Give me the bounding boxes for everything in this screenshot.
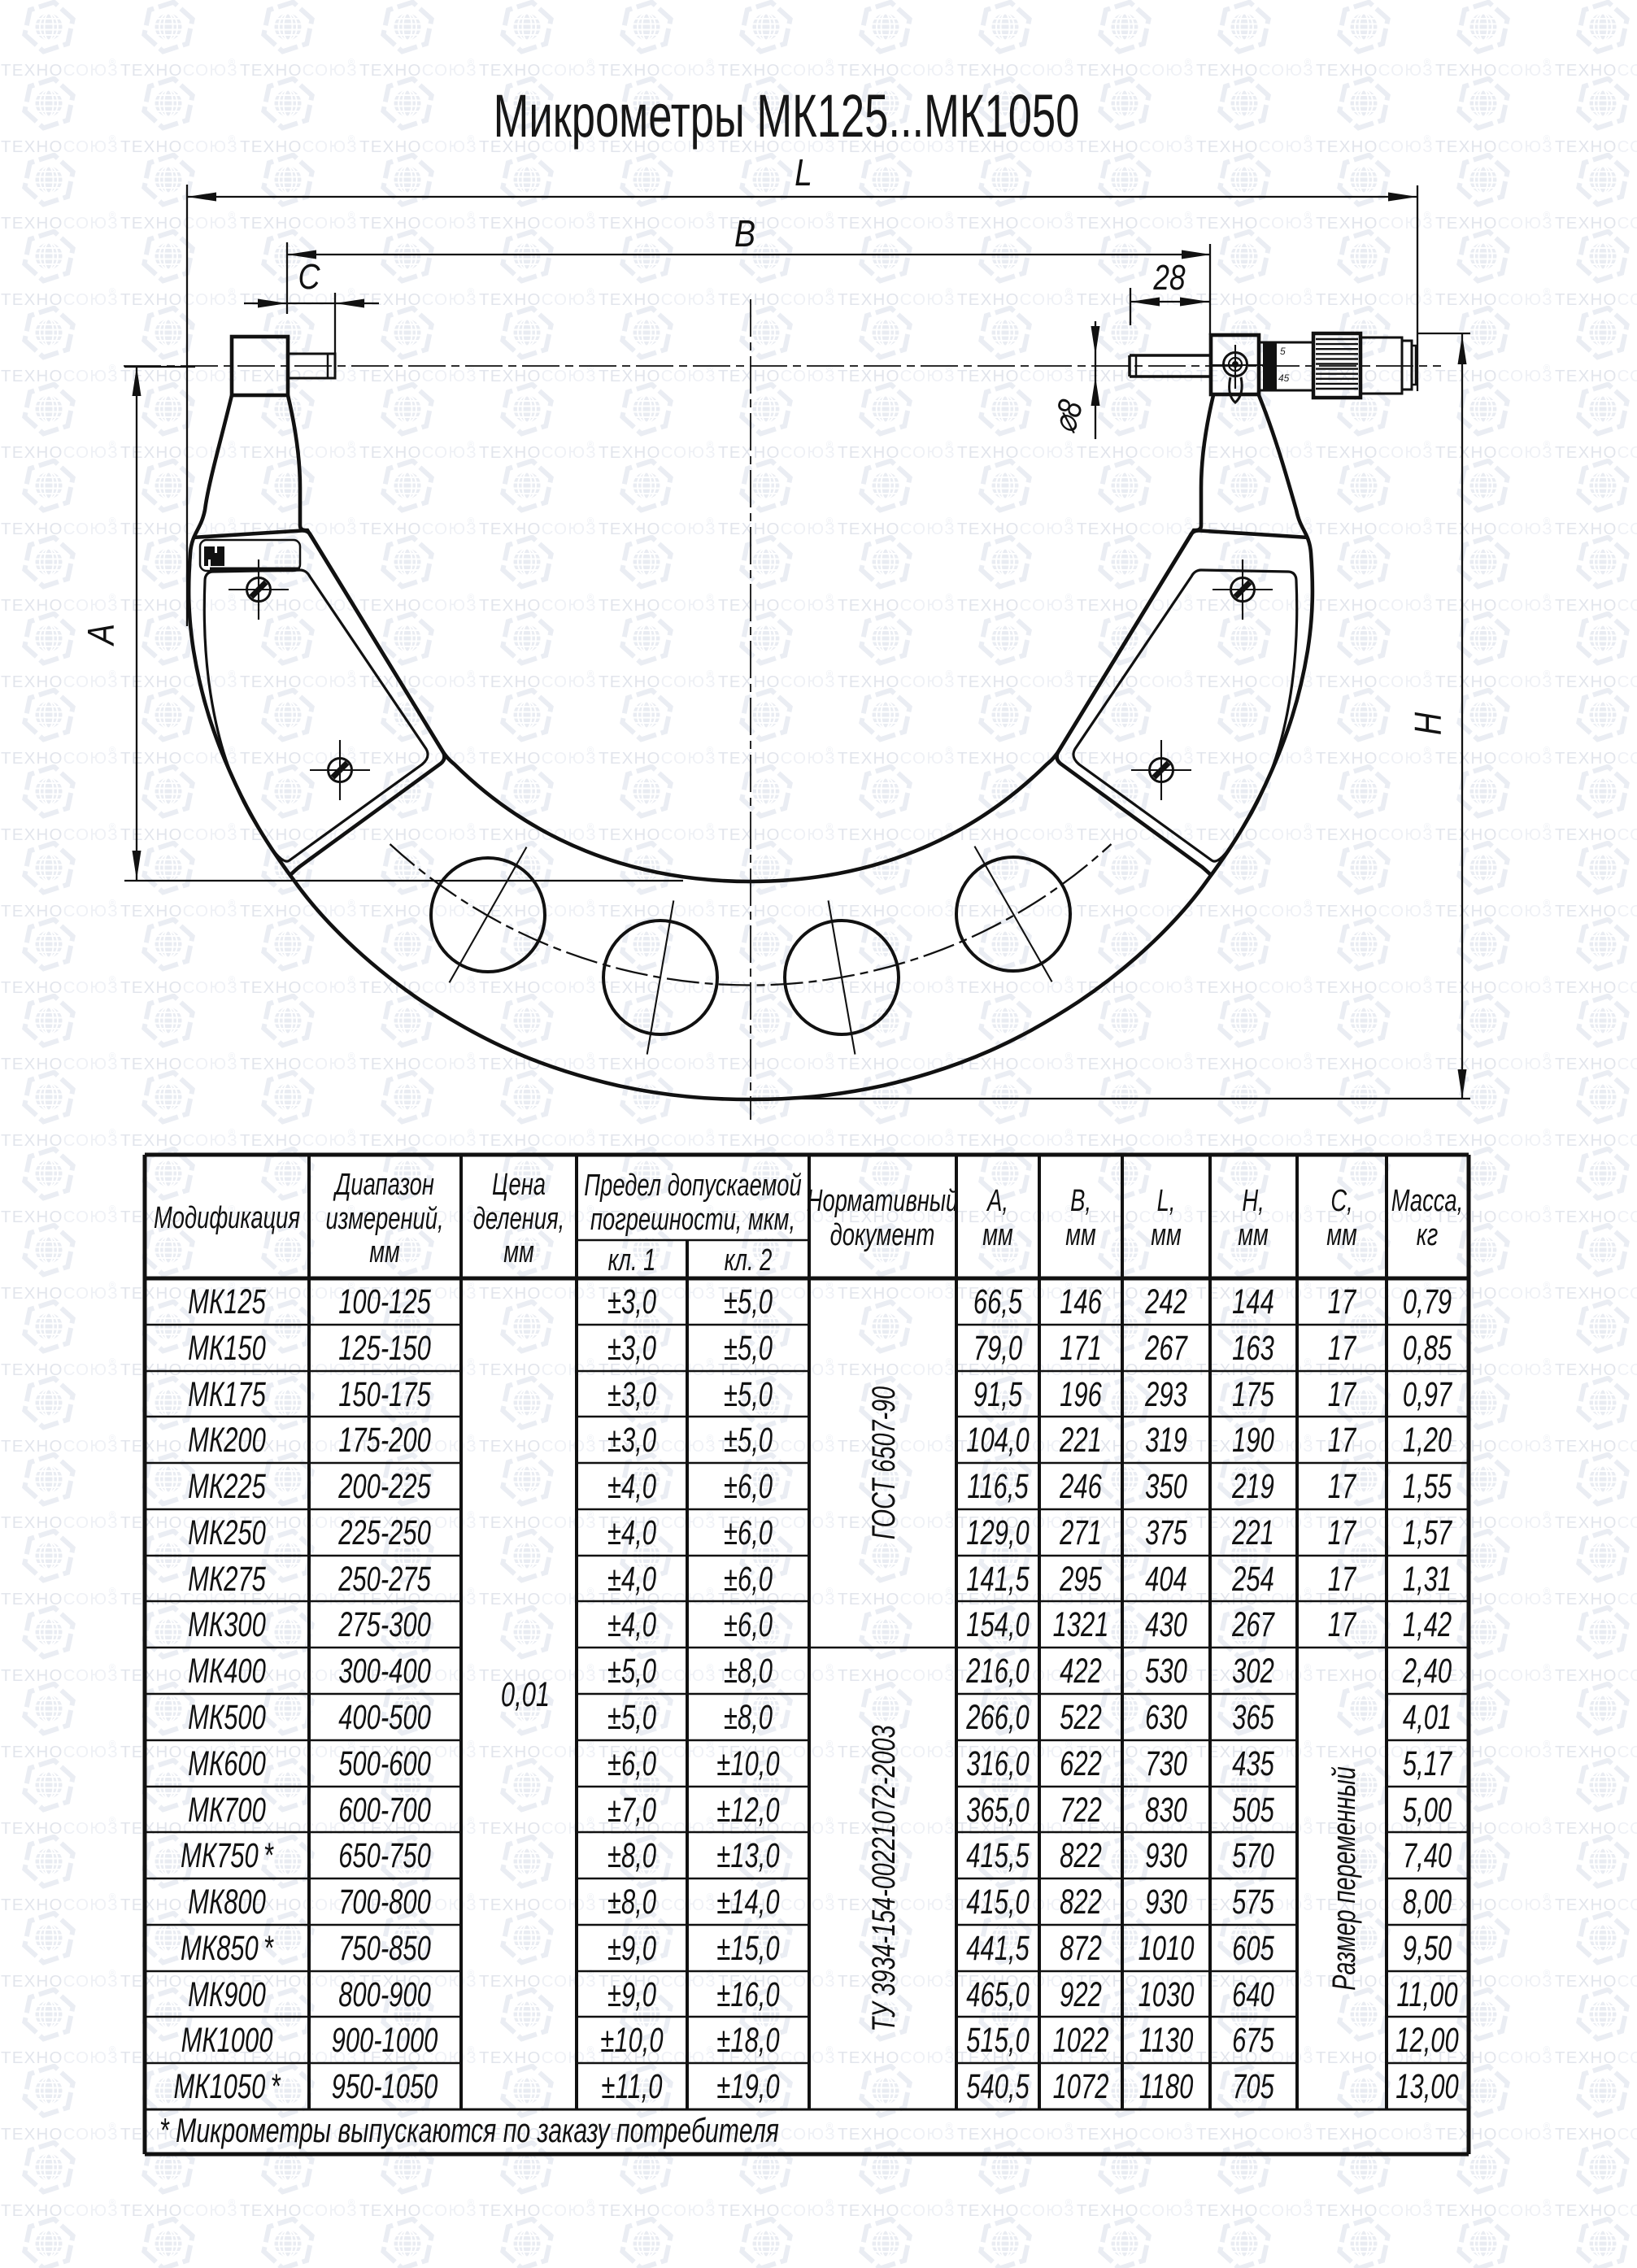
svg-text:МК1000: МК1000 xyxy=(181,2020,273,2059)
svg-text:±6,0: ±6,0 xyxy=(724,1604,773,1643)
svg-text:17: 17 xyxy=(1328,1466,1356,1505)
svg-text:319: 319 xyxy=(1145,1420,1187,1459)
svg-text:С: С xyxy=(298,256,320,297)
svg-text:кл. 2: кл. 2 xyxy=(725,1243,773,1278)
svg-text:Нормативный: Нормативный xyxy=(807,1184,959,1218)
svg-text:Размер переменный: Размер переменный xyxy=(1326,1766,1362,1991)
svg-text:365,0: 365,0 xyxy=(966,1790,1030,1829)
svg-text:12,00: 12,00 xyxy=(1395,2020,1459,2059)
svg-text:1022: 1022 xyxy=(1053,2020,1109,2059)
svg-text:640: 640 xyxy=(1232,1974,1274,2013)
svg-text:600-700: 600-700 xyxy=(338,1790,431,1829)
svg-text:242: 242 xyxy=(1144,1282,1187,1321)
svg-text:5: 5 xyxy=(1280,346,1286,357)
svg-text:430: 430 xyxy=(1145,1604,1187,1643)
svg-text:±3,0: ±3,0 xyxy=(607,1374,656,1413)
svg-text:254: 254 xyxy=(1231,1559,1273,1598)
svg-text:302: 302 xyxy=(1232,1651,1274,1690)
svg-text:91,5: 91,5 xyxy=(973,1374,1022,1413)
svg-text:540,5: 540,5 xyxy=(966,2066,1030,2105)
svg-text:705: 705 xyxy=(1232,2066,1274,2105)
svg-text:С,: С, xyxy=(1330,1184,1352,1218)
svg-text:мм: мм xyxy=(1151,1218,1182,1252)
svg-text:11,00: 11,00 xyxy=(1396,1974,1457,2013)
svg-text:В,: В, xyxy=(1070,1184,1091,1218)
svg-text:±7,0: ±7,0 xyxy=(607,1790,656,1829)
svg-text:271: 271 xyxy=(1059,1513,1101,1552)
svg-text:216,0: 216,0 xyxy=(965,1651,1029,1690)
svg-text:мм: мм xyxy=(1065,1218,1096,1252)
svg-text:221: 221 xyxy=(1231,1513,1273,1552)
svg-text:±3,0: ±3,0 xyxy=(607,1420,656,1459)
svg-text:1130: 1130 xyxy=(1139,2020,1194,2059)
svg-text:1321: 1321 xyxy=(1053,1604,1109,1643)
svg-text:В: В xyxy=(734,213,755,255)
svg-text:Диапазон: Диапазон xyxy=(333,1168,434,1202)
svg-text:±3,0: ±3,0 xyxy=(607,1328,656,1367)
svg-text:730: 730 xyxy=(1145,1743,1187,1783)
svg-text:1010: 1010 xyxy=(1138,1928,1195,1967)
svg-text:±5,0: ±5,0 xyxy=(724,1328,773,1367)
svg-text:0,01: 0,01 xyxy=(501,1674,550,1713)
svg-text:±5,0: ±5,0 xyxy=(724,1420,773,1459)
svg-text:515,0: 515,0 xyxy=(966,2020,1030,2059)
svg-text:822: 822 xyxy=(1060,1835,1102,1874)
svg-text:МК600: МК600 xyxy=(188,1743,266,1783)
svg-text:125-150: 125-150 xyxy=(338,1328,431,1367)
svg-text:МК850 *: МК850 * xyxy=(181,1928,274,1967)
svg-text:17: 17 xyxy=(1328,1282,1356,1321)
svg-text:163: 163 xyxy=(1232,1328,1274,1367)
svg-text:МК225: МК225 xyxy=(188,1466,266,1505)
svg-text:МК125: МК125 xyxy=(188,1282,266,1321)
svg-text:171: 171 xyxy=(1060,1328,1102,1367)
svg-text:Модификация: Модификация xyxy=(154,1201,300,1235)
svg-text:МК200: МК200 xyxy=(188,1420,266,1459)
svg-text:МК175: МК175 xyxy=(188,1374,266,1413)
svg-text:293: 293 xyxy=(1144,1374,1187,1413)
svg-text:мм: мм xyxy=(1326,1218,1357,1252)
svg-text:575: 575 xyxy=(1232,1882,1274,1921)
svg-text:104,0: 104,0 xyxy=(966,1420,1030,1459)
svg-text:1030: 1030 xyxy=(1138,1974,1195,2013)
svg-text:±8,0: ±8,0 xyxy=(724,1697,773,1736)
svg-text:0,97: 0,97 xyxy=(1403,1374,1452,1413)
svg-text:МК750 *: МК750 * xyxy=(181,1835,274,1874)
svg-text:кл. 1: кл. 1 xyxy=(608,1243,656,1278)
svg-text:А,: А, xyxy=(986,1184,1008,1218)
svg-text:±3,0: ±3,0 xyxy=(607,1282,656,1321)
svg-text:950-1050: 950-1050 xyxy=(332,2066,438,2105)
svg-text:1,31: 1,31 xyxy=(1403,1559,1452,1598)
svg-text:316,0: 316,0 xyxy=(966,1743,1030,1783)
svg-text:±9,0: ±9,0 xyxy=(607,1974,656,2013)
svg-text:17: 17 xyxy=(1328,1374,1356,1413)
svg-text:219: 219 xyxy=(1231,1466,1274,1505)
svg-text:документ: документ xyxy=(830,1218,935,1252)
svg-text:МК250: МК250 xyxy=(188,1513,266,1552)
svg-text:404: 404 xyxy=(1145,1559,1187,1598)
svg-text:погрешности, мкм,: погрешности, мкм, xyxy=(590,1203,795,1237)
svg-text:±4,0: ±4,0 xyxy=(607,1513,656,1552)
svg-text:441,5: 441,5 xyxy=(966,1928,1030,1967)
svg-text:деления,: деления, xyxy=(473,1202,565,1236)
svg-text:1072: 1072 xyxy=(1053,2066,1109,2105)
svg-text:±5,0: ±5,0 xyxy=(724,1282,773,1321)
svg-text:2,40: 2,40 xyxy=(1402,1651,1452,1690)
svg-text:Микрометры МК125...МК1050: Микрометры МК125...МК1050 xyxy=(494,82,1080,150)
svg-text:28: 28 xyxy=(1153,258,1186,298)
svg-text:L,: L, xyxy=(1157,1184,1176,1218)
svg-text:930: 930 xyxy=(1145,1882,1187,1921)
svg-text:5,17: 5,17 xyxy=(1403,1743,1452,1783)
svg-text:±6,0: ±6,0 xyxy=(724,1513,773,1552)
svg-text:МК500: МК500 xyxy=(188,1697,266,1736)
svg-text:17: 17 xyxy=(1328,1559,1356,1598)
svg-text:±5,0: ±5,0 xyxy=(607,1651,656,1690)
svg-text:45: 45 xyxy=(1278,372,1290,384)
svg-text:415,5: 415,5 xyxy=(966,1835,1030,1874)
svg-text:17: 17 xyxy=(1328,1604,1356,1643)
svg-text:196: 196 xyxy=(1060,1374,1102,1413)
svg-text:±5,0: ±5,0 xyxy=(607,1697,656,1736)
svg-text:266,0: 266,0 xyxy=(965,1697,1029,1736)
svg-text:±15,0: ±15,0 xyxy=(716,1928,779,1967)
svg-text:900-1000: 900-1000 xyxy=(332,2020,438,2059)
svg-text:129,0: 129,0 xyxy=(966,1513,1030,1552)
svg-text:±8,0: ±8,0 xyxy=(724,1651,773,1690)
svg-text:±10,0: ±10,0 xyxy=(600,2020,663,2059)
svg-text:мм: мм xyxy=(1238,1218,1269,1252)
svg-text:±13,0: ±13,0 xyxy=(716,1835,779,1874)
svg-text:±4,0: ±4,0 xyxy=(607,1604,656,1643)
svg-text:±16,0: ±16,0 xyxy=(716,1974,779,2013)
svg-text:700-800: 700-800 xyxy=(338,1882,431,1921)
svg-text:4,01: 4,01 xyxy=(1403,1697,1452,1736)
svg-text:116,5: 116,5 xyxy=(967,1466,1028,1505)
svg-text:422: 422 xyxy=(1060,1651,1102,1690)
svg-text:0,79: 0,79 xyxy=(1403,1282,1452,1321)
svg-text:Н,: Н, xyxy=(1242,1184,1264,1218)
svg-text:МК900: МК900 xyxy=(188,1974,266,2013)
svg-text:±14,0: ±14,0 xyxy=(716,1882,779,1921)
svg-text:±18,0: ±18,0 xyxy=(716,2020,779,2059)
svg-text:±6,0: ±6,0 xyxy=(724,1559,773,1598)
svg-text:221: 221 xyxy=(1059,1420,1101,1459)
svg-text:±6,0: ±6,0 xyxy=(607,1743,656,1783)
svg-text:630: 630 xyxy=(1145,1697,1187,1736)
svg-text:МК800: МК800 xyxy=(188,1882,266,1921)
svg-text:530: 530 xyxy=(1145,1651,1187,1690)
svg-text:±4,0: ±4,0 xyxy=(607,1466,656,1505)
svg-text:79,0: 79,0 xyxy=(973,1328,1022,1367)
svg-text:66,5: 66,5 xyxy=(973,1282,1022,1321)
svg-text:МК400: МК400 xyxy=(188,1651,266,1690)
svg-text:722: 722 xyxy=(1060,1790,1102,1829)
svg-text:295: 295 xyxy=(1059,1559,1102,1598)
svg-text:А: А xyxy=(81,624,123,647)
svg-text:1,55: 1,55 xyxy=(1403,1466,1452,1505)
svg-text:1,57: 1,57 xyxy=(1403,1513,1452,1552)
svg-text:±10,0: ±10,0 xyxy=(716,1743,779,1783)
svg-text:930: 930 xyxy=(1145,1835,1187,1874)
svg-text:225-250: 225-250 xyxy=(337,1513,431,1552)
svg-text:17: 17 xyxy=(1328,1513,1356,1552)
svg-text:±11,0: ±11,0 xyxy=(602,2066,663,2105)
svg-text:МК300: МК300 xyxy=(188,1604,266,1643)
svg-text:500-600: 500-600 xyxy=(338,1743,431,1783)
svg-text:кг: кг xyxy=(1417,1218,1438,1252)
svg-text:5,00: 5,00 xyxy=(1403,1790,1452,1829)
svg-text:275-300: 275-300 xyxy=(337,1604,431,1643)
svg-text:МК275: МК275 xyxy=(188,1559,266,1598)
svg-text:830: 830 xyxy=(1145,1790,1187,1829)
svg-text:±8,0: ±8,0 xyxy=(607,1882,656,1921)
svg-text:622: 622 xyxy=(1060,1743,1102,1783)
svg-text:8,00: 8,00 xyxy=(1403,1882,1452,1921)
svg-text:±8,0: ±8,0 xyxy=(607,1835,656,1874)
svg-text:365: 365 xyxy=(1232,1697,1274,1736)
svg-text:0,85: 0,85 xyxy=(1403,1328,1452,1367)
svg-text:190: 190 xyxy=(1232,1420,1274,1459)
svg-text:9,50: 9,50 xyxy=(1403,1928,1452,1967)
svg-text:* Микрометры выпускаются по за: * Микрометры выпускаются по заказу потре… xyxy=(159,2111,779,2149)
svg-text:246: 246 xyxy=(1059,1466,1102,1505)
svg-text:750-850: 750-850 xyxy=(338,1928,431,1967)
svg-text:800-900: 800-900 xyxy=(338,1974,431,2013)
svg-text:±12,0: ±12,0 xyxy=(716,1790,779,1829)
svg-text:17: 17 xyxy=(1328,1328,1356,1367)
svg-text:Масса,: Масса, xyxy=(1391,1184,1463,1218)
svg-text:146: 146 xyxy=(1060,1282,1102,1321)
svg-text:570: 570 xyxy=(1232,1835,1274,1874)
svg-text:300-400: 300-400 xyxy=(338,1651,431,1690)
svg-text:1,20: 1,20 xyxy=(1403,1420,1452,1459)
svg-text:1180: 1180 xyxy=(1139,2066,1194,2105)
svg-text:Н: Н xyxy=(1408,712,1450,735)
svg-text:мм: мм xyxy=(369,1235,400,1269)
svg-text:L: L xyxy=(795,152,812,194)
svg-text:415,0: 415,0 xyxy=(966,1882,1030,1921)
svg-text:144: 144 xyxy=(1232,1282,1274,1321)
svg-text:17: 17 xyxy=(1328,1420,1356,1459)
svg-text:±4,0: ±4,0 xyxy=(607,1559,656,1598)
svg-text:175: 175 xyxy=(1232,1374,1274,1413)
svg-text:±6,0: ±6,0 xyxy=(724,1466,773,1505)
svg-text:267: 267 xyxy=(1144,1328,1187,1367)
svg-text:измерений,: измерений, xyxy=(325,1202,443,1236)
svg-text:175-200: 175-200 xyxy=(338,1420,431,1459)
svg-text:375: 375 xyxy=(1145,1513,1187,1552)
svg-text:ГОСТ 6507-90: ГОСТ 6507-90 xyxy=(865,1386,902,1539)
svg-text:822: 822 xyxy=(1060,1882,1102,1921)
svg-text:250-275: 250-275 xyxy=(337,1559,431,1598)
svg-text:435: 435 xyxy=(1232,1743,1274,1783)
svg-text:650-750: 650-750 xyxy=(338,1835,431,1874)
svg-text:мм: мм xyxy=(503,1235,534,1269)
svg-text:605: 605 xyxy=(1232,1928,1274,1967)
svg-text:1,42: 1,42 xyxy=(1403,1604,1452,1643)
svg-text:922: 922 xyxy=(1060,1974,1102,2013)
svg-text:МК150: МК150 xyxy=(188,1328,266,1367)
svg-text:400-500: 400-500 xyxy=(338,1697,431,1736)
svg-text:13,00: 13,00 xyxy=(1395,2066,1459,2105)
svg-text:±9,0: ±9,0 xyxy=(607,1928,656,1967)
svg-text:200-225: 200-225 xyxy=(337,1466,431,1505)
svg-text:±19,0: ±19,0 xyxy=(716,2066,779,2105)
svg-text:Предел допускаемой: Предел допускаемой xyxy=(584,1169,801,1203)
svg-text:МК700: МК700 xyxy=(188,1790,266,1829)
svg-text:522: 522 xyxy=(1060,1697,1102,1736)
svg-text:МК1050 *: МК1050 * xyxy=(173,2066,281,2105)
svg-text:872: 872 xyxy=(1060,1928,1102,1967)
svg-text:Цена: Цена xyxy=(492,1168,546,1202)
svg-text:350: 350 xyxy=(1145,1466,1187,1505)
svg-text:267: 267 xyxy=(1231,1604,1274,1643)
svg-text:505: 505 xyxy=(1232,1790,1274,1829)
svg-text:154,0: 154,0 xyxy=(966,1604,1030,1643)
svg-text:ТУ 3934-154-00221072-2003: ТУ 3934-154-00221072-2003 xyxy=(865,1725,902,2032)
svg-text:675: 675 xyxy=(1232,2020,1274,2059)
svg-text:7,40: 7,40 xyxy=(1403,1835,1452,1874)
svg-text:±5,0: ±5,0 xyxy=(724,1374,773,1413)
svg-text:150-175: 150-175 xyxy=(338,1374,431,1413)
svg-text:100-125: 100-125 xyxy=(338,1282,431,1321)
svg-text:141,5: 141,5 xyxy=(966,1559,1030,1598)
svg-text:мм: мм xyxy=(982,1218,1013,1252)
svg-text:465,0: 465,0 xyxy=(966,1974,1030,2013)
